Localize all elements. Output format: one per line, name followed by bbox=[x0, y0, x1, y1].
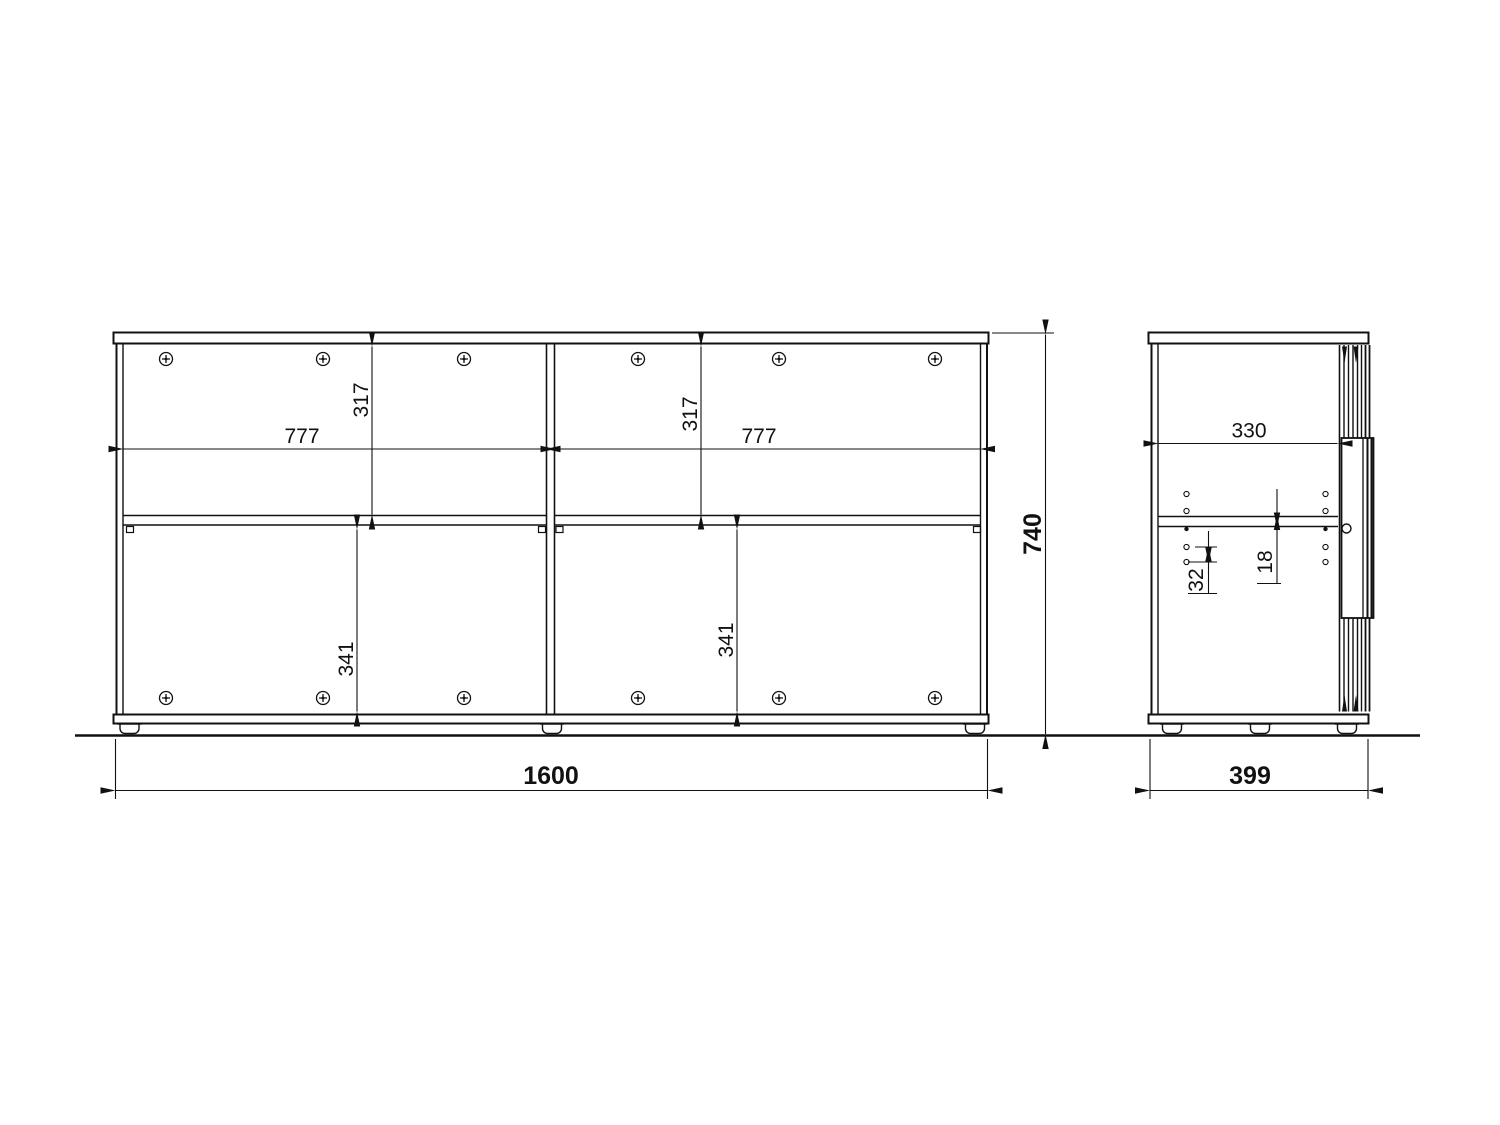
panel-clip bbox=[539, 527, 546, 533]
dim-label-lower-right-341: 341 bbox=[715, 622, 738, 657]
bottom-panel bbox=[114, 715, 989, 724]
shelf-pin-hole bbox=[1323, 544, 1328, 549]
screw-icon bbox=[160, 692, 173, 705]
dim-label-overall-height-740: 740 bbox=[1019, 513, 1047, 555]
shelf-pin-hole bbox=[1323, 559, 1328, 564]
door-edge-seal bbox=[1342, 347, 1347, 364]
shelf-pin-hole bbox=[1184, 544, 1189, 549]
front-view bbox=[114, 333, 989, 734]
panel-clip bbox=[127, 527, 134, 533]
technical-drawing-page: 317 317 777 777 341 341 1600 740 bbox=[0, 0, 1500, 1125]
screw-icon bbox=[632, 353, 645, 366]
hinge-pin bbox=[1342, 524, 1351, 533]
dim-label-inner-depth-330: 330 bbox=[1231, 420, 1266, 443]
foot bbox=[1248, 724, 1272, 734]
dim-label-upper-right-317: 317 bbox=[679, 396, 702, 431]
screw-icon bbox=[773, 692, 786, 705]
screw-icon bbox=[929, 353, 942, 366]
foot bbox=[118, 724, 142, 734]
screw-icon bbox=[458, 353, 471, 366]
shelf-pin-hole bbox=[1323, 508, 1328, 513]
shelf-pin-hole bbox=[1184, 508, 1189, 513]
dim-label-overall-depth-399: 399 bbox=[1229, 762, 1271, 790]
shelf-support-pin bbox=[1323, 527, 1327, 531]
panel-clip bbox=[556, 527, 563, 533]
foot bbox=[1335, 724, 1359, 734]
dim-label-overall-width-1600: 1600 bbox=[523, 762, 579, 790]
screw-icon bbox=[632, 692, 645, 705]
top-panel bbox=[1149, 333, 1369, 344]
screw-icon bbox=[929, 692, 942, 705]
screw-icon bbox=[317, 692, 330, 705]
screw-icon bbox=[160, 353, 173, 366]
door-handle-profile bbox=[1342, 438, 1374, 618]
panel-clip bbox=[974, 527, 981, 533]
dim-label-lower-left-341: 341 bbox=[335, 641, 358, 676]
dim-label-bay-left-777: 777 bbox=[284, 425, 319, 448]
dim-label-shelf-thickness-18: 18 bbox=[1254, 550, 1277, 573]
side-view bbox=[1149, 333, 1374, 734]
foot bbox=[540, 724, 564, 734]
shelf-pin-hole bbox=[1323, 491, 1328, 496]
door-edge-seal bbox=[1342, 695, 1347, 712]
dim-label-upper-left-317: 317 bbox=[350, 382, 373, 417]
shelf-pin-hole bbox=[1184, 491, 1189, 496]
front-view-dimensions: 317 317 777 777 341 341 1600 740 bbox=[116, 333, 1055, 799]
cabinet-dimension-drawing: 317 317 777 777 341 341 1600 740 bbox=[0, 0, 1500, 1125]
dim-label-hole-spacing-32: 32 bbox=[1185, 568, 1208, 591]
top-panel bbox=[114, 333, 989, 344]
side-view-dimensions: 330 18 32 399 bbox=[1150, 420, 1368, 800]
shelf-support-pin bbox=[1184, 527, 1188, 531]
foot bbox=[1160, 724, 1184, 734]
foot bbox=[963, 724, 987, 734]
bottom-panel bbox=[1149, 715, 1369, 724]
screw-icon bbox=[773, 353, 786, 366]
screw-icon bbox=[317, 353, 330, 366]
dim-label-bay-right-777: 777 bbox=[741, 425, 776, 448]
screw-icon bbox=[458, 692, 471, 705]
